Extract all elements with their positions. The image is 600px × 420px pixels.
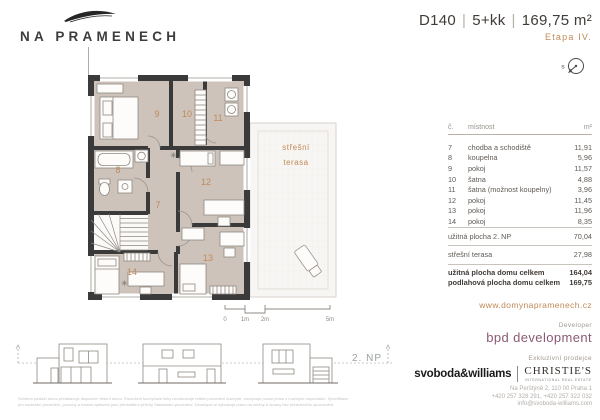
room-label-7: 7: [155, 200, 160, 210]
compass-icon: [568, 59, 584, 74]
broker-logos: svoboda&williams CHRISTIE'S INTERNATIONA…: [414, 365, 592, 382]
unit-layout: 5+kk: [472, 12, 505, 29]
chair: [224, 248, 235, 257]
unit-area: 169,75 m²: [522, 12, 592, 29]
compass-south-label: s: [561, 64, 565, 71]
broker-contact: Na Perštýně 2, 110 00 Praha 1 +420 257 3…: [414, 386, 592, 409]
developer-name: bpd development: [414, 330, 592, 345]
room-label-11: 11: [213, 113, 222, 123]
room-label-13: 13: [203, 253, 213, 263]
christies-logo: CHRISTIE'S INTERNATIONAL REAL ESTATE: [524, 365, 592, 382]
col-name: místnost: [468, 124, 584, 131]
shelf: [124, 253, 150, 261]
room-table: č. místnost m² 7chodba a schodiště11,91 …: [448, 120, 592, 287]
table-row: 10šatna4,88: [448, 174, 592, 185]
elevation-side: [138, 344, 226, 383]
room-table-header: č. místnost m²: [448, 120, 592, 134]
elevation-front: [33, 344, 112, 383]
broker-email: info@svoboda-williams.com: [414, 401, 592, 409]
elevation-rear: [258, 344, 338, 383]
room-label-10: 10: [182, 109, 192, 119]
total-row: podlahová plocha domu celkem169,75: [448, 277, 592, 287]
room-label-12: 12: [201, 177, 211, 187]
stairwell-area: [91, 214, 148, 252]
logo-divider: [517, 366, 518, 382]
plant-icon: ✳: [170, 151, 177, 160]
scale-5m: 5m: [326, 317, 334, 323]
chair: [140, 287, 151, 294]
footer: Developer bpd development Exkluzivní pro…: [414, 322, 592, 409]
table-row: 12pokoj11,45: [448, 195, 592, 206]
desk: [204, 200, 244, 215]
scale-1m: 1m: [241, 317, 249, 323]
broker-phones: +420 257 328 291, +420 257 322 032: [414, 394, 592, 402]
elevation-drawings: 2. NP: [16, 344, 392, 383]
brand-logo: NA PRAMENECH: [20, 29, 180, 44]
roof-terrace: střešní terasa: [250, 123, 336, 297]
totals-block: užitná plocha domu celkem164,04 podlahov…: [448, 265, 592, 287]
scale-bar: 0 1m 2m 5m: [223, 305, 334, 323]
dresser: [97, 84, 123, 93]
desk: [220, 232, 244, 246]
table-row: 7chodba a schodiště11,91: [448, 142, 592, 153]
terrace-label-line1: střešní: [282, 143, 310, 152]
table-row: 9pokoj11,57: [448, 163, 592, 174]
stage-label: Etapa IV.: [419, 32, 592, 42]
logo-swoosh-icon: [64, 11, 116, 22]
unit-title: D140|5+kk|169,75 m²: [419, 12, 592, 29]
developer-label: Developer: [414, 322, 592, 329]
room-table-body: 7chodba a schodiště11,91 8koupelna5,96 9…: [448, 135, 592, 227]
subtotal-row: užitná plocha 2. NP70,04: [448, 228, 592, 245]
disclaimer-text: Schéma podlaží domu představuje dispozič…: [18, 396, 400, 407]
table-row: 8koupelna5,96: [448, 153, 592, 164]
plant-icon: ✳: [121, 279, 128, 288]
col-area: m²: [584, 124, 592, 131]
wardrobe: [220, 151, 244, 165]
website-link[interactable]: www.domynapramenech.cz: [479, 300, 592, 310]
floor-level-label: 2. NP: [352, 353, 382, 364]
radiator: [210, 286, 236, 294]
unit-code: D140: [419, 12, 456, 29]
scale-2m: 2m: [261, 317, 269, 323]
svoboda-williams-logo: svoboda&williams: [414, 368, 511, 380]
broker-label: Exkluzivní prodejce: [414, 355, 592, 362]
unit-header: D140|5+kk|169,75 m² Etapa IV.: [419, 12, 592, 42]
table-row: 11šatna (možnost koupelny)3,96: [448, 184, 592, 195]
table-row: 13pokoj11,96: [448, 206, 592, 217]
subtotal-row: střešní terasa27,98: [448, 246, 592, 264]
floor-plan: střešní terasa: [88, 75, 337, 324]
room-label-9: 9: [154, 109, 159, 119]
total-row: užitná plocha domu celkem164,04: [448, 268, 592, 278]
col-number: č.: [448, 124, 468, 131]
scale-0: 0: [223, 317, 227, 323]
chair: [218, 217, 230, 226]
table-row: 14pokoj8,35: [448, 216, 592, 227]
cabinet: [182, 228, 204, 240]
broker-address: Na Perštýně 2, 110 00 Praha 1: [414, 386, 592, 394]
room-label-8: 8: [115, 165, 120, 175]
terrace-label-line2: terasa: [283, 158, 308, 167]
wardrobe-rack: [195, 90, 206, 145]
room-label-14: 14: [127, 267, 137, 277]
